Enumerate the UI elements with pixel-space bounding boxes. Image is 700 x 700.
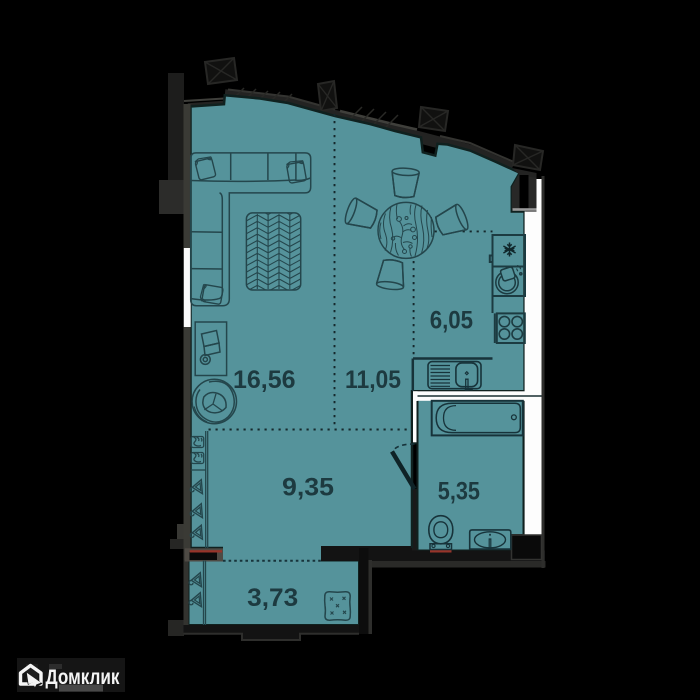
- svg-text:Домклик: Домклик: [46, 665, 120, 689]
- svg-text:3,73: 3,73: [247, 584, 298, 612]
- svg-text:11,05: 11,05: [345, 366, 401, 394]
- svg-text:6,05: 6,05: [430, 307, 473, 335]
- svg-text:5,35: 5,35: [438, 478, 480, 506]
- svg-text:16,56: 16,56: [233, 366, 296, 394]
- svg-text:9,35: 9,35: [282, 474, 334, 502]
